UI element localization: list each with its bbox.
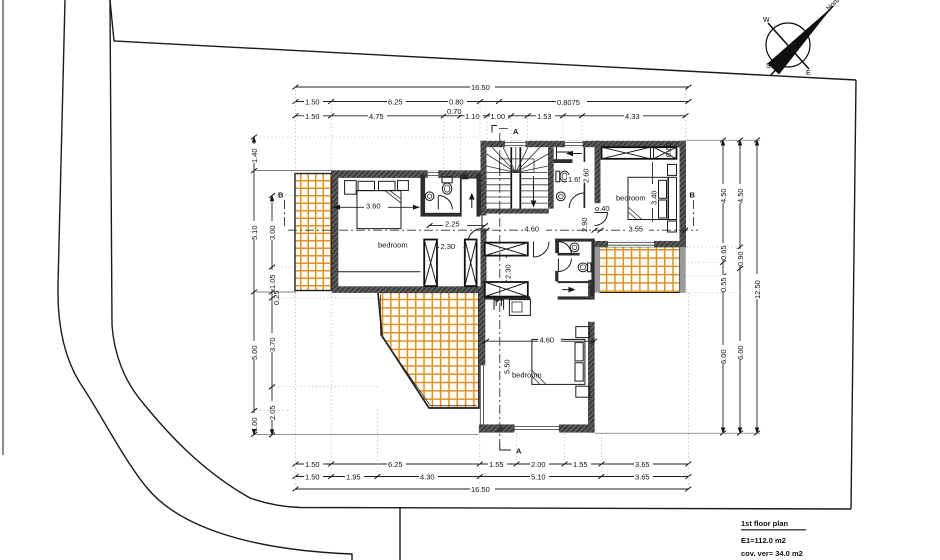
svg-text:3.65: 3.65 (635, 460, 650, 469)
svg-text:A: A (516, 447, 522, 456)
svg-text:0.65: 0.65 (719, 245, 728, 260)
svg-text:1.00: 1.00 (491, 112, 506, 121)
svg-text:0.70: 0.70 (447, 107, 462, 116)
svg-text:3.60: 3.60 (366, 202, 381, 211)
svg-text:5.00: 5.00 (250, 345, 259, 360)
svg-text:4.60: 4.60 (525, 224, 540, 233)
svg-text:3.70: 3.70 (268, 337, 277, 352)
svg-text:E: E (806, 70, 811, 77)
svg-text:0.90: 0.90 (736, 251, 745, 266)
svg-text:5.50: 5.50 (503, 359, 512, 374)
svg-text:1.05: 1.05 (268, 274, 277, 289)
svg-text:1.50: 1.50 (305, 98, 320, 107)
svg-text:4.60: 4.60 (540, 335, 555, 344)
svg-text:0.80: 0.80 (449, 98, 464, 107)
svg-text:3.55: 3.55 (629, 224, 644, 233)
svg-text:E1=112.0 m2: E1=112.0 m2 (741, 536, 786, 545)
svg-text:A: A (513, 127, 519, 136)
svg-text:W: W (763, 17, 770, 24)
svg-text:1.95: 1.95 (346, 473, 361, 482)
svg-text:1.55: 1.55 (573, 460, 588, 469)
svg-text:0.8075: 0.8075 (557, 98, 580, 107)
svg-text:12.50: 12.50 (753, 280, 762, 299)
svg-text:2.60: 2.60 (582, 168, 591, 183)
svg-text:4.50: 4.50 (719, 188, 728, 203)
svg-text:4.30: 4.30 (420, 473, 435, 482)
svg-text:2.30: 2.30 (504, 264, 513, 279)
svg-text:2.90: 2.90 (580, 217, 589, 232)
svg-text:1.50: 1.50 (305, 112, 320, 121)
svg-text:16.50: 16.50 (471, 83, 490, 92)
svg-text:6.25: 6.25 (388, 460, 403, 469)
svg-text:B: B (690, 191, 696, 200)
svg-text:S: S (766, 63, 771, 70)
svg-text:bedroom: bedroom (616, 194, 646, 203)
svg-text:cov. ver= 34.0 m2: cov. ver= 34.0 m2 (741, 549, 803, 558)
svg-text:o.40: o.40 (595, 204, 610, 213)
svg-text:4.50: 4.50 (736, 188, 745, 203)
svg-text:1.40: 1.40 (250, 148, 259, 163)
svg-text:3.40: 3.40 (650, 190, 659, 205)
svg-text:2.00: 2.00 (531, 460, 546, 469)
svg-text:16.50: 16.50 (471, 485, 490, 494)
svg-text:bedroom: bedroom (378, 241, 408, 250)
svg-text:bedroom: bedroom (512, 371, 542, 380)
svg-text:6.25: 6.25 (388, 98, 403, 107)
svg-text:2.30: 2.30 (441, 242, 456, 251)
svg-text:1.53: 1.53 (537, 112, 552, 121)
svg-text:0.55: 0.55 (719, 277, 728, 292)
svg-text:0.25: 0.25 (272, 290, 281, 305)
svg-text:B: B (278, 191, 284, 200)
svg-text:0.60: 0.60 (664, 142, 673, 157)
svg-text:6.00: 6.00 (719, 349, 728, 364)
svg-text:2.25: 2.25 (445, 220, 460, 229)
svg-text:5.10: 5.10 (531, 473, 546, 482)
svg-text:1st floor plan: 1st floor plan (741, 519, 789, 528)
svg-text:4.33: 4.33 (625, 112, 640, 121)
svg-text:6.00: 6.00 (736, 345, 745, 360)
svg-text:1.10: 1.10 (465, 112, 480, 121)
svg-text:3.00: 3.00 (268, 225, 277, 240)
svg-text:1.50: 1.50 (305, 460, 320, 469)
svg-text:4.75: 4.75 (369, 112, 384, 121)
svg-text:3.65: 3.65 (635, 473, 650, 482)
svg-text:2.05: 2.05 (268, 405, 277, 420)
svg-text:1.50: 1.50 (305, 473, 320, 482)
svg-text:5.10: 5.10 (250, 225, 259, 240)
svg-text:1.55: 1.55 (489, 460, 504, 469)
